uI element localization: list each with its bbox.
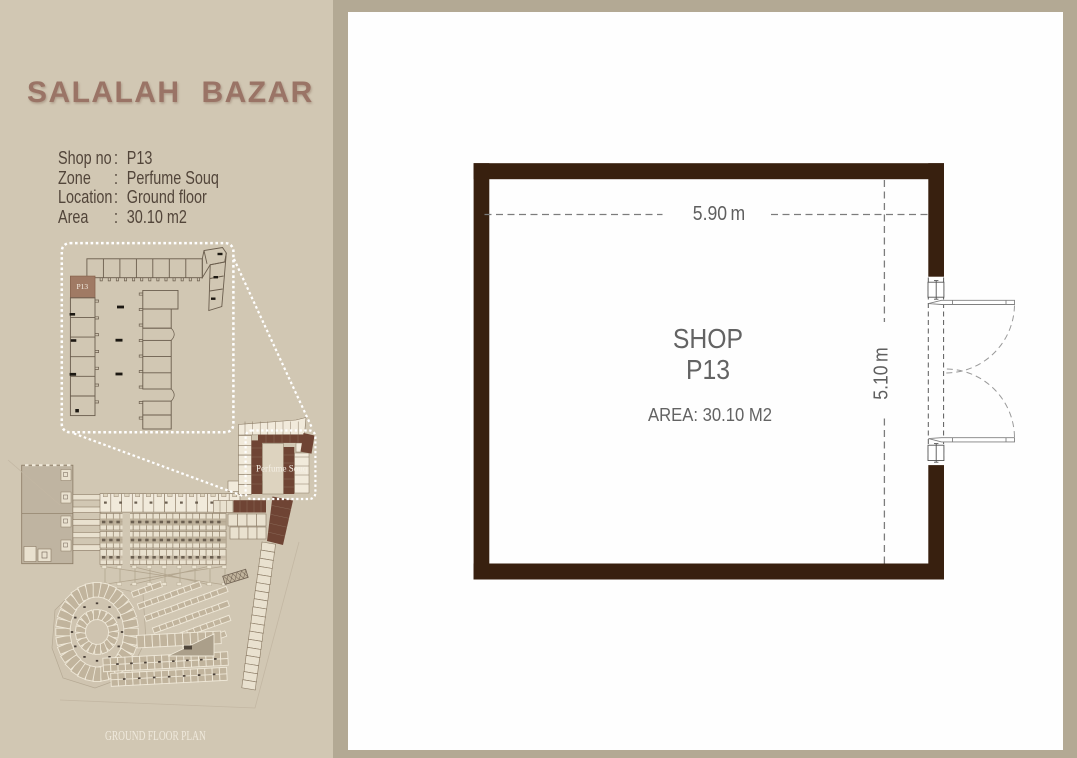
svg-text:P13: P13 bbox=[77, 282, 89, 291]
svg-text:Perfume Souq: Perfume Souq bbox=[256, 464, 308, 474]
